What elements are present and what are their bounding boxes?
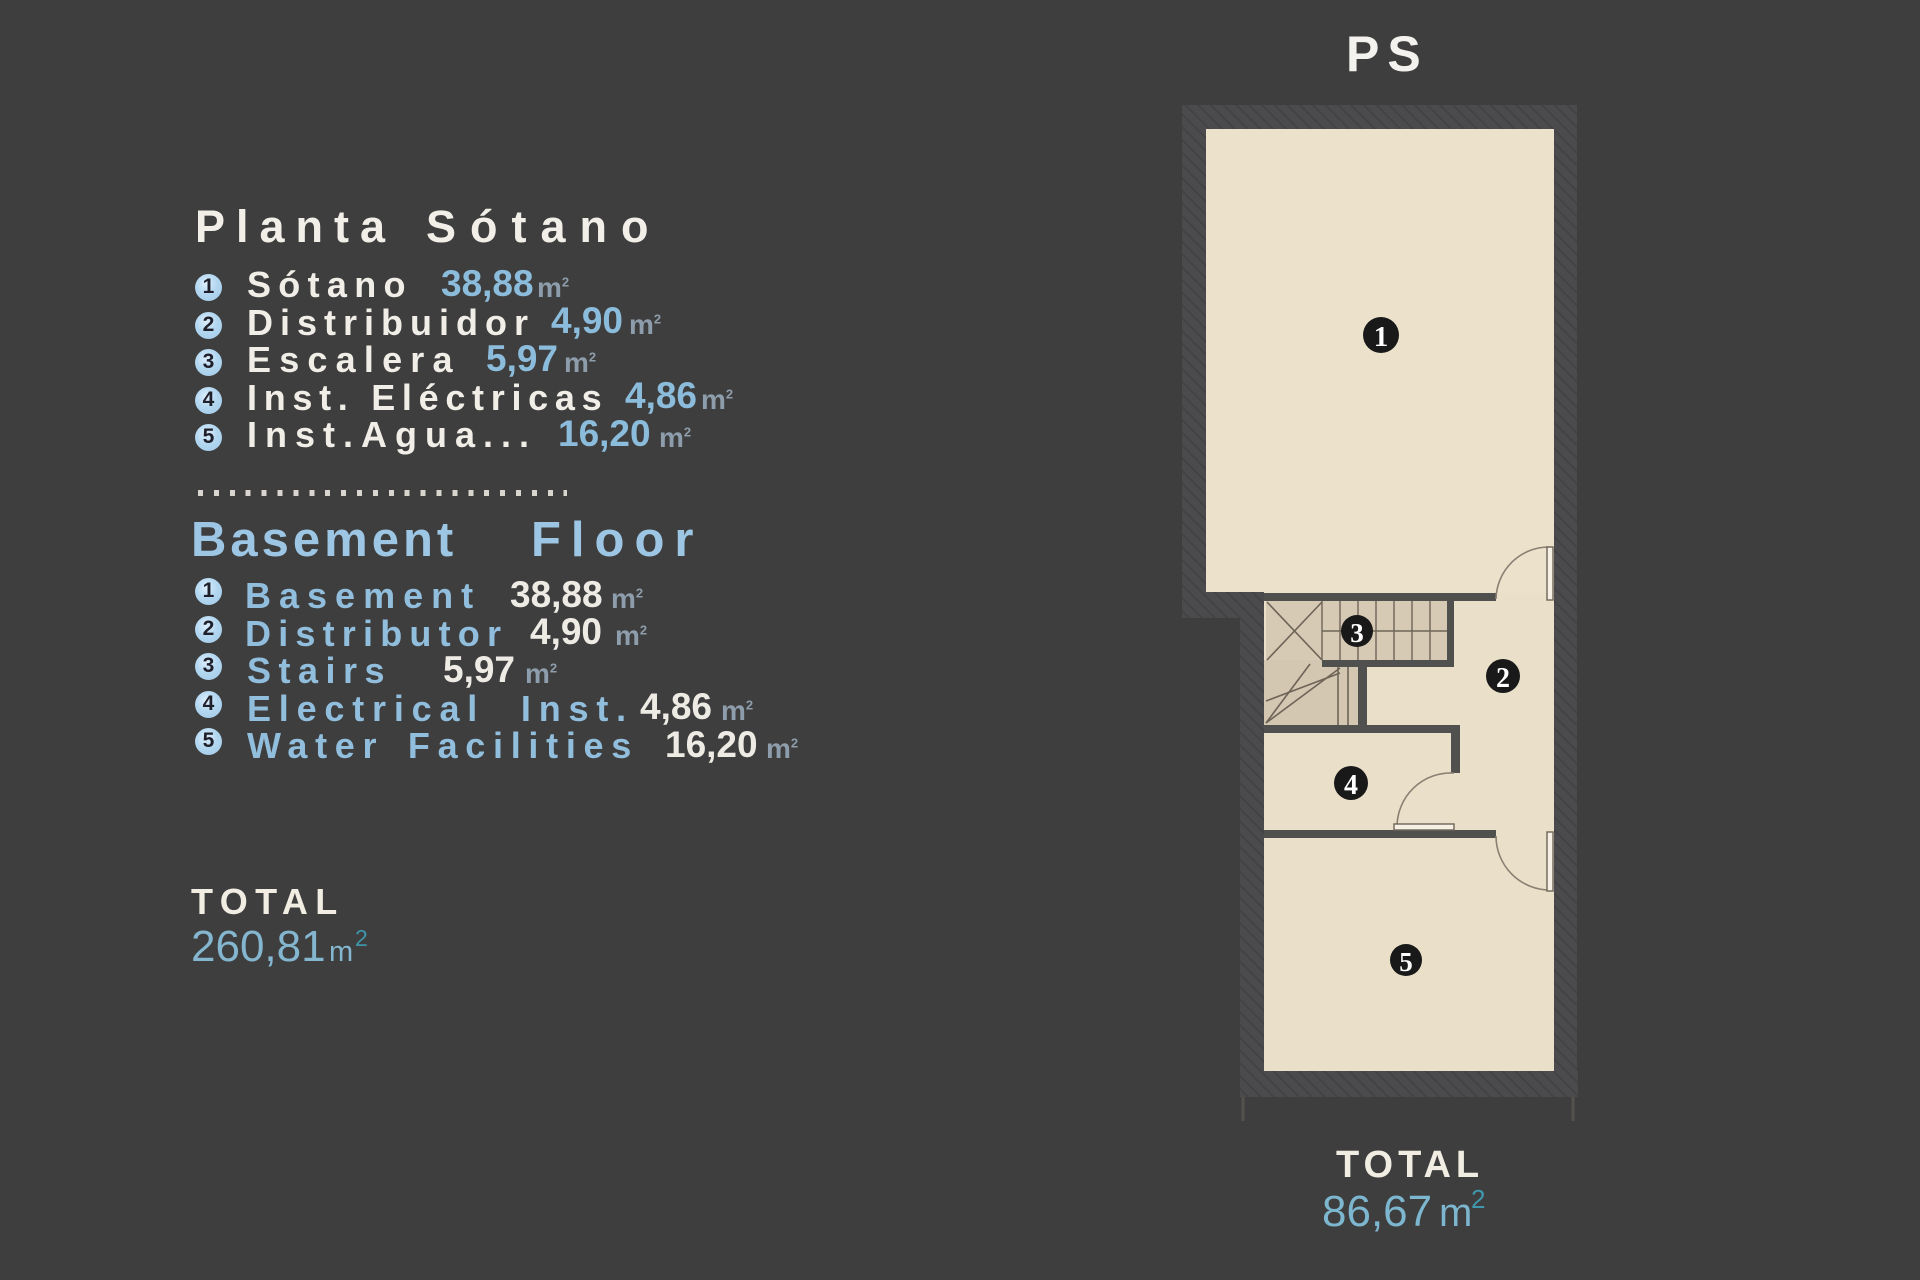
svg-text:5: 5 (1399, 947, 1413, 977)
svg-text:2: 2 (1496, 663, 1510, 694)
svg-text:4: 4 (1344, 770, 1358, 801)
svg-text:3: 3 (1350, 618, 1364, 648)
svg-text:1: 1 (1374, 321, 1389, 353)
